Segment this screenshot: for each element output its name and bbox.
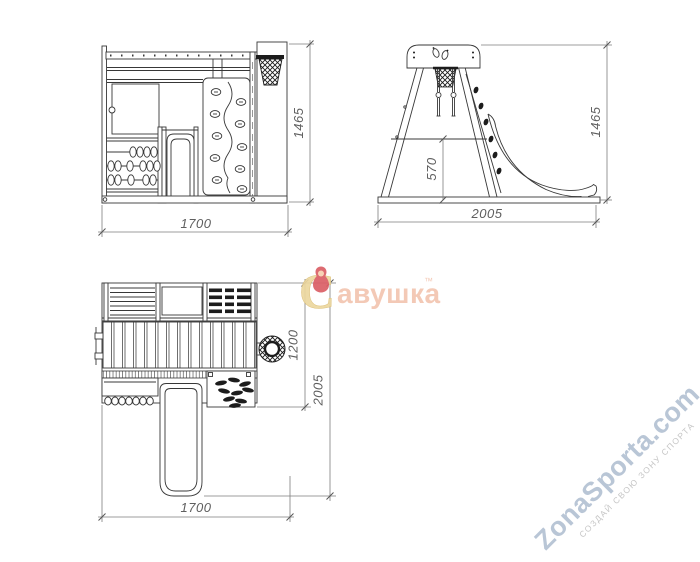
plan-inner-depth-dim: 1200 — [286, 329, 301, 360]
front-left-post — [102, 46, 107, 203]
climbing-wall-plan — [207, 371, 255, 408]
abacus-plan — [102, 378, 158, 405]
plan-width-dim: 1700 — [181, 500, 212, 515]
side-length-dim: 2005 — [471, 206, 503, 221]
front-view — [102, 42, 287, 203]
front-base — [102, 196, 287, 203]
climbing-wall-front — [203, 78, 250, 195]
front-width-dim: 1700 — [181, 216, 212, 231]
header-panel — [407, 45, 480, 68]
front-top-beam — [106, 52, 258, 59]
basketball-ring-plan-icon — [257, 336, 285, 362]
brand-trademark: ™ — [424, 276, 433, 286]
site-watermark: ZonaSporta.com СОЗДАЙ СВОЮ ЗОНУ СПОРТА — [529, 379, 700, 562]
monkey-bar-rungs — [110, 288, 155, 315]
deck-floor-slats — [103, 322, 256, 368]
plan-total-depth-dim: 2005 — [311, 374, 326, 406]
slide-front — [162, 127, 198, 203]
side-height-dim: 1465 — [588, 106, 603, 137]
playground-drawing: 1700 1465 — [0, 0, 700, 562]
plan-view — [95, 283, 285, 496]
platform-height-dim: 570 — [424, 157, 439, 180]
site-name: ZonaSporta.com — [529, 379, 700, 556]
slide-plan — [160, 384, 202, 497]
abacus-counter — [107, 127, 163, 203]
brand-watermark: С авушка ™ — [299, 263, 441, 319]
slide-side — [488, 114, 597, 197]
side-ground-beam — [378, 197, 600, 203]
front-height-dim: 1465 — [291, 107, 306, 138]
plan-open-panel — [162, 287, 202, 315]
technical-drawing-page: 1700 1465 — [0, 0, 700, 562]
play-panel — [109, 84, 159, 134]
side-view — [378, 45, 600, 203]
